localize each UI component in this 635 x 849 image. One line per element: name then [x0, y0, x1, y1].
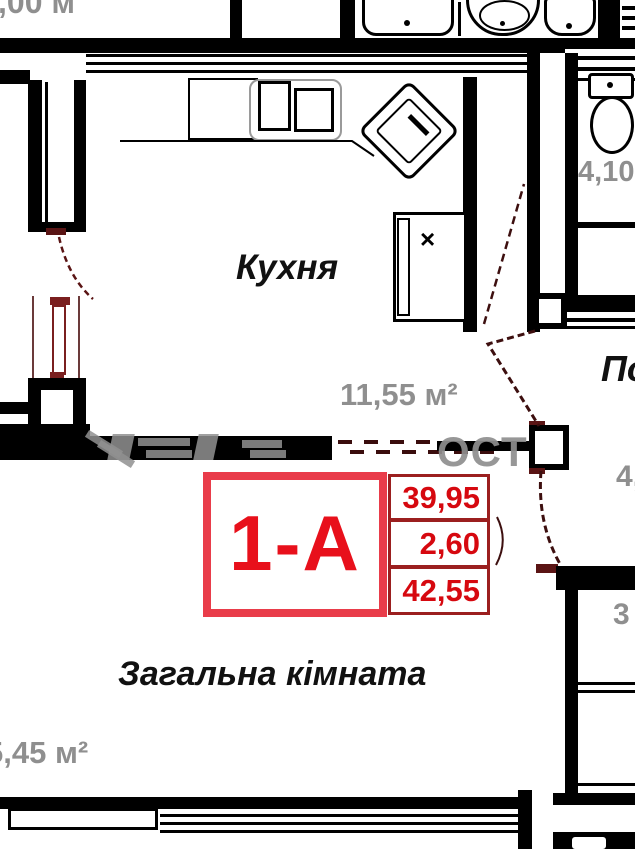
- wall-line: [567, 318, 635, 322]
- kitchen-window: [86, 54, 538, 76]
- sink-basin-icon: [258, 81, 291, 131]
- door-guide-line: [78, 296, 80, 380]
- wall-line: [578, 690, 635, 693]
- wall-segment: [74, 80, 86, 230]
- door-cap: [536, 564, 558, 573]
- unit-area-row: 39,95: [388, 474, 490, 521]
- bathroom-wall: [565, 222, 635, 228]
- door-cap: [529, 468, 545, 474]
- sink-top-icon: [362, 0, 454, 36]
- wall-hatch: [622, 6, 635, 10]
- wall-hatch: [622, 16, 635, 20]
- appliance-x-icon: ×: [420, 224, 435, 255]
- room-label-living: Загальна кімната: [118, 655, 426, 694]
- top-wall: [0, 38, 635, 53]
- door-swing-dash: [59, 237, 93, 299]
- watermark-text: ОСТ: [437, 428, 528, 476]
- unit-area-row: 2,60: [388, 519, 490, 568]
- toilet-dot-icon: [607, 82, 613, 88]
- room-label-kitchen: Кухня: [236, 248, 338, 288]
- wall-line: [578, 783, 635, 786]
- wall-segment: [340, 0, 355, 40]
- door-post: [529, 425, 569, 470]
- wall-segment: [598, 0, 620, 40]
- door-guide-line: [32, 296, 34, 380]
- wall-segment: [556, 566, 635, 590]
- door-threshold: [46, 228, 66, 235]
- faucet-dot-icon: [500, 21, 505, 26]
- watermark-shape: [146, 450, 192, 458]
- door-post: [533, 293, 567, 329]
- sink-basin-icon: [294, 88, 334, 132]
- wall-segment: [565, 590, 578, 805]
- shaft-diagonal-dash: [484, 184, 524, 324]
- toilet-bowl-icon: [590, 96, 634, 154]
- area-label-kitchen: 11,55 м²: [340, 377, 458, 413]
- area-label-closet-partial: 3: [613, 598, 630, 632]
- unit-info-box: 1-А: [203, 472, 387, 617]
- wall-segment: [40, 378, 86, 390]
- wall-line: [578, 682, 635, 685]
- wall-line: [567, 326, 635, 329]
- watermark-shape: [250, 450, 286, 458]
- wall-hatch: [622, 26, 635, 30]
- kitchen-cabinet: [188, 78, 258, 140]
- area-label-hallway-partial: 4,: [616, 460, 635, 494]
- sink-icon: [570, 835, 608, 849]
- wall-segment: [0, 424, 90, 438]
- wall-segment: [73, 390, 86, 428]
- wall-line: [45, 82, 48, 228]
- living-window: [160, 806, 532, 833]
- area-label-partial-top-left: ,00 м: [0, 0, 75, 21]
- unit-area-row: 42,55: [388, 566, 490, 615]
- wall-segment: [0, 70, 30, 84]
- wall-segment: [28, 80, 42, 230]
- wall-segment: [565, 53, 578, 295]
- wall-segment: [553, 793, 635, 805]
- toilet-top-icon: [544, 0, 596, 36]
- door-swing-dash: [540, 471, 560, 564]
- wall-segment: [518, 790, 532, 849]
- wall-segment: [230, 0, 242, 40]
- hallway-wall: [565, 295, 635, 312]
- opening-dashes: [338, 440, 434, 444]
- room-label-hallway-partial: По: [601, 348, 635, 390]
- unit-label: 1-А: [229, 499, 361, 587]
- door-arc: [496, 517, 503, 565]
- appliance-strip: [397, 218, 410, 316]
- washbasin-bowl-icon: [479, 0, 530, 31]
- door-leaf: [52, 305, 66, 375]
- window-opening: [8, 808, 158, 830]
- floor-plan: ОСТ × ,00 м Кухня 11,: [0, 0, 635, 849]
- wall-segment: [458, 2, 461, 36]
- wall-segment: [0, 402, 28, 414]
- area-label-bathroom: 4,10: [578, 156, 634, 189]
- door-swing-dash: [488, 331, 539, 426]
- area-label-living: 5,45 м²: [0, 735, 88, 771]
- wall-segment: [527, 53, 540, 332]
- door-leaf-cap: [50, 297, 70, 305]
- faucet-dot-icon: [404, 20, 410, 26]
- watermark-shape: [138, 438, 190, 446]
- counter-line: [120, 141, 374, 156]
- toilet-dot-icon: [566, 23, 572, 29]
- watermark-shape: [242, 440, 282, 448]
